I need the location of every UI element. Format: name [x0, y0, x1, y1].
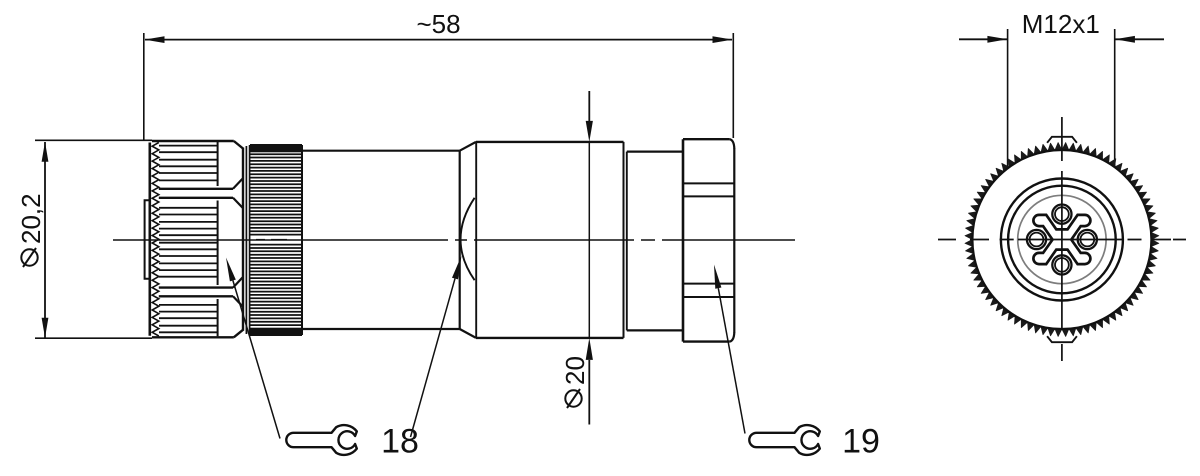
svg-text:~58: ~58 — [416, 9, 460, 39]
svg-text:20: 20 — [560, 356, 590, 385]
svg-text:19: 19 — [842, 423, 880, 461]
svg-text:M12x1: M12x1 — [1022, 9, 1100, 39]
svg-text:20,2: 20,2 — [16, 193, 46, 244]
svg-text:18: 18 — [381, 423, 419, 461]
